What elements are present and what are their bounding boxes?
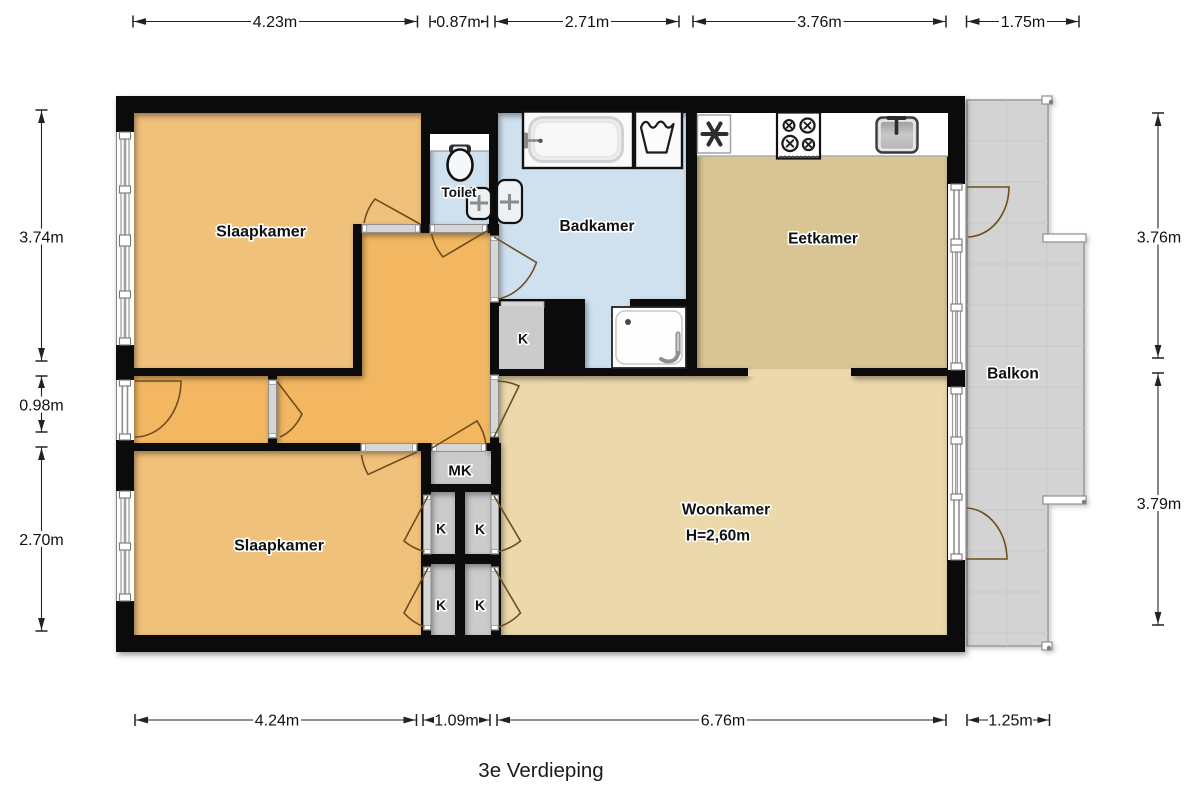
svg-text:Woonkamer: Woonkamer [682,502,770,519]
svg-text:Slaapkamer: Slaapkamer [234,538,324,555]
svg-text:Badkamer: Badkamer [560,218,635,235]
svg-text:4.24m: 4.24m [255,713,299,730]
svg-text:2.70m: 2.70m [19,532,63,549]
svg-text:K: K [518,331,528,347]
svg-text:1.75m: 1.75m [1001,14,1045,31]
svg-text:MK: MK [448,463,471,480]
svg-text:0.87m: 0.87m [436,14,480,31]
svg-text:Toilet: Toilet [442,185,478,200]
svg-text:4.23m: 4.23m [253,14,297,31]
svg-text:H=2,60m: H=2,60m [686,528,750,545]
svg-text:6.76m: 6.76m [701,713,745,730]
svg-text:1.09m: 1.09m [434,713,478,730]
svg-text:Balkon: Balkon [987,366,1039,383]
svg-text:Eetkamer: Eetkamer [788,231,858,248]
svg-text:Slaapkamer: Slaapkamer [216,224,306,241]
svg-text:3e Verdieping: 3e Verdieping [478,759,603,782]
svg-text:K: K [475,597,485,613]
svg-text:3.74m: 3.74m [19,230,63,247]
svg-text:2.71m: 2.71m [565,14,609,31]
svg-text:0.98m: 0.98m [19,398,63,415]
svg-text:K: K [436,521,446,537]
svg-text:K: K [475,521,485,537]
svg-text:K: K [436,597,446,613]
svg-text:3.79m: 3.79m [1137,496,1181,513]
svg-text:1.25m: 1.25m [988,713,1032,730]
svg-text:3.76m: 3.76m [1137,230,1181,247]
svg-text:3.76m: 3.76m [797,14,841,31]
